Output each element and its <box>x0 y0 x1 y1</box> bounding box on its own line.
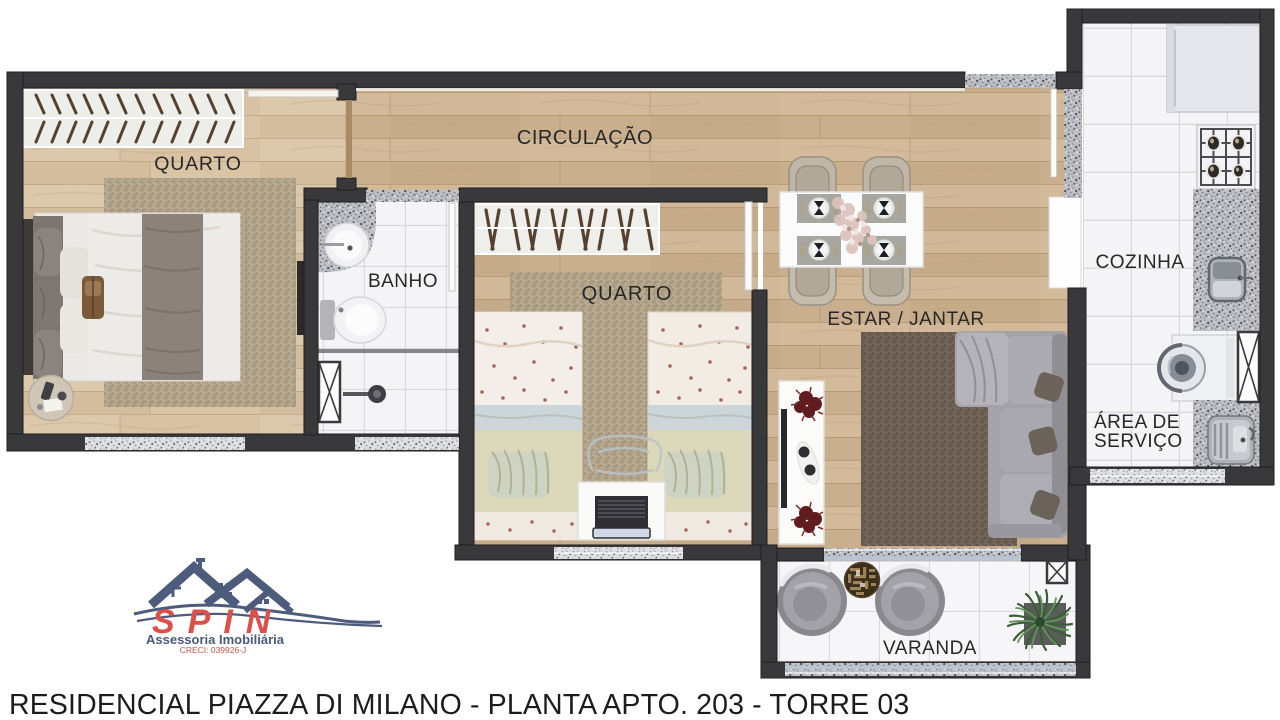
svg-text:QUARTO: QUARTO <box>582 283 673 305</box>
svg-text:ÁREA DE: ÁREA DE <box>1094 412 1180 433</box>
svg-text:CIRCULAÇÃO: CIRCULAÇÃO <box>517 125 653 149</box>
svg-text:BANHO: BANHO <box>368 271 438 292</box>
svg-text:ESTAR / JANTAR: ESTAR / JANTAR <box>827 309 984 330</box>
svg-text:CRECI: 039926-J: CRECI: 039926-J <box>180 645 247 655</box>
svg-text:VARANDA: VARANDA <box>883 638 977 659</box>
svg-text:SERVIÇO: SERVIÇO <box>1094 431 1183 452</box>
svg-text:QUARTO: QUARTO <box>154 153 242 175</box>
svg-text:RESIDENCIAL PIAZZA DI MILANO -: RESIDENCIAL PIAZZA DI MILANO - PLANTA AP… <box>9 689 909 720</box>
svg-text:COZINHA: COZINHA <box>1096 252 1185 273</box>
